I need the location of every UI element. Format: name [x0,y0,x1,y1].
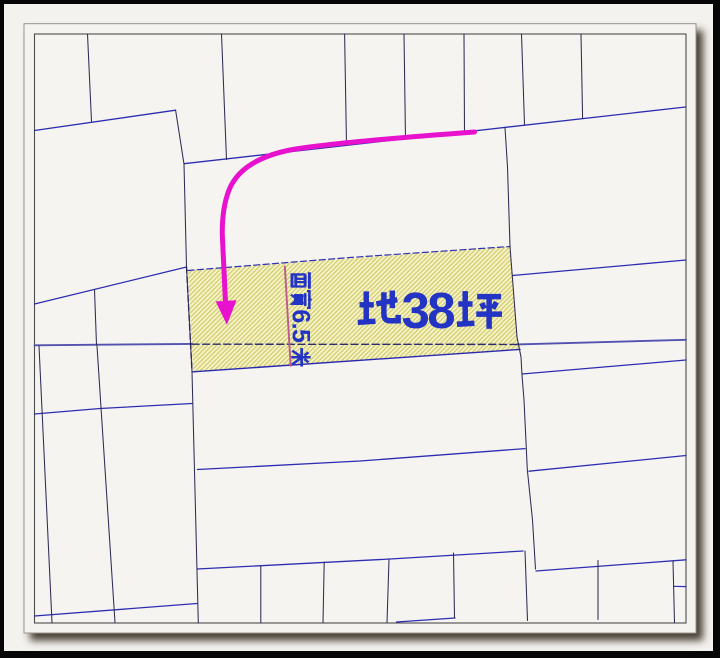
svg-text:38: 38 [402,282,455,339]
svg-text:6.5: 6.5 [286,309,314,343]
